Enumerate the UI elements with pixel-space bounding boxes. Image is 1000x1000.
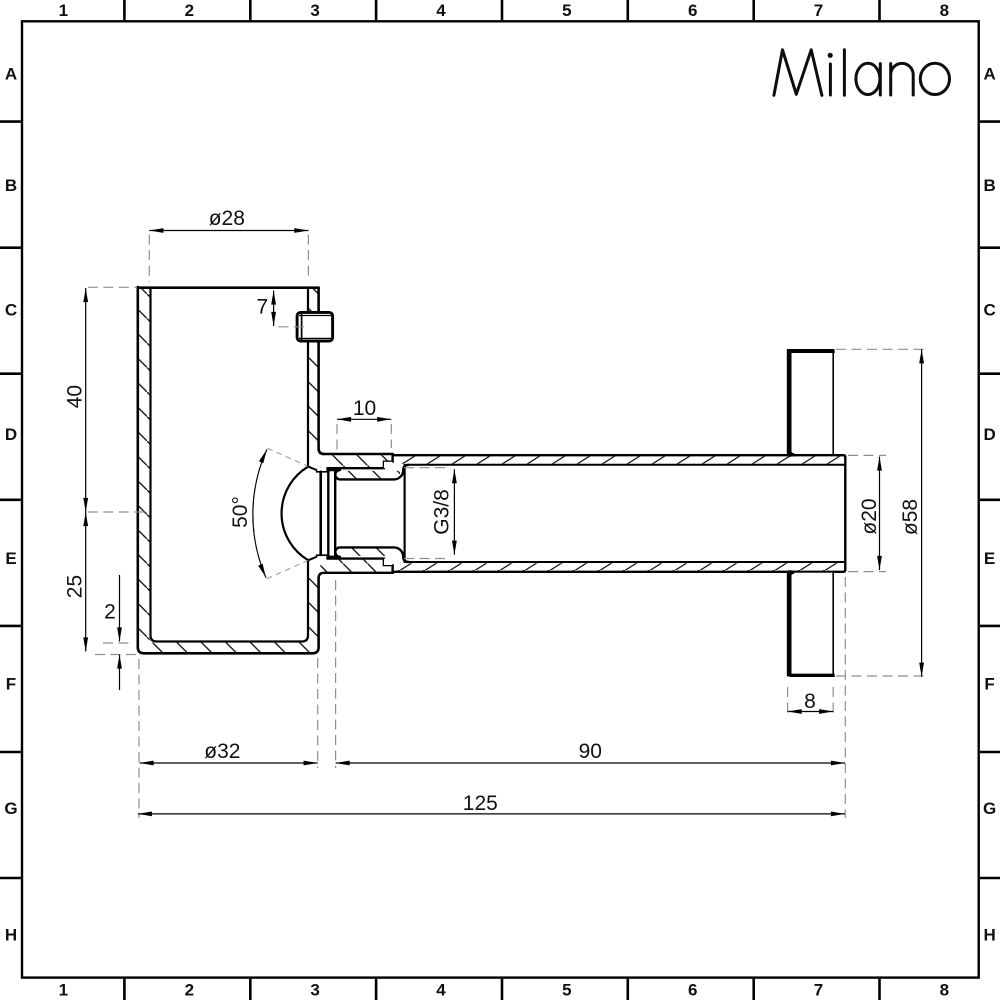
svg-text:25: 25: [64, 575, 87, 598]
svg-text:40: 40: [64, 385, 87, 408]
svg-text:E: E: [5, 549, 16, 568]
svg-text:B: B: [5, 176, 17, 195]
svg-text:C: C: [5, 301, 17, 320]
svg-text:4: 4: [436, 980, 446, 999]
svg-text:8: 8: [804, 690, 816, 713]
svg-text:F: F: [6, 674, 16, 693]
svg-text:125: 125: [463, 792, 498, 815]
svg-text:ø28: ø28: [209, 207, 245, 230]
svg-text:F: F: [984, 674, 994, 693]
svg-text:6: 6: [688, 1, 697, 20]
svg-text:6: 6: [688, 980, 697, 999]
svg-text:H: H: [983, 926, 995, 945]
svg-text:ø32: ø32: [204, 740, 240, 763]
svg-text:3: 3: [310, 980, 319, 999]
svg-text:ø20: ø20: [858, 498, 881, 534]
svg-text:H: H: [5, 926, 17, 945]
svg-text:50°: 50°: [229, 496, 252, 528]
svg-text:7: 7: [814, 980, 823, 999]
svg-text:G3/8: G3/8: [431, 489, 454, 535]
svg-text:90: 90: [579, 740, 602, 763]
svg-text:2: 2: [104, 601, 116, 624]
svg-text:7: 7: [814, 1, 823, 20]
svg-text:2: 2: [185, 1, 194, 20]
svg-text:A: A: [5, 64, 17, 83]
svg-text:G: G: [4, 799, 17, 818]
svg-text:4: 4: [436, 1, 446, 20]
svg-text:1: 1: [59, 1, 68, 20]
svg-text:5: 5: [562, 1, 571, 20]
svg-text:5: 5: [562, 980, 571, 999]
svg-text:1: 1: [59, 980, 68, 999]
svg-text:G: G: [983, 799, 996, 818]
svg-text:C: C: [983, 301, 995, 320]
svg-text:3: 3: [310, 1, 319, 20]
svg-text:D: D: [5, 425, 17, 444]
svg-text:8: 8: [940, 980, 949, 999]
svg-text:8: 8: [940, 1, 949, 20]
svg-text:ø58: ø58: [899, 499, 922, 535]
svg-text:2: 2: [185, 980, 194, 999]
svg-text:B: B: [983, 176, 995, 195]
svg-text:A: A: [983, 64, 995, 83]
svg-text:D: D: [983, 425, 995, 444]
svg-text:7: 7: [257, 296, 269, 319]
svg-text:10: 10: [353, 397, 376, 420]
svg-text:E: E: [984, 549, 995, 568]
